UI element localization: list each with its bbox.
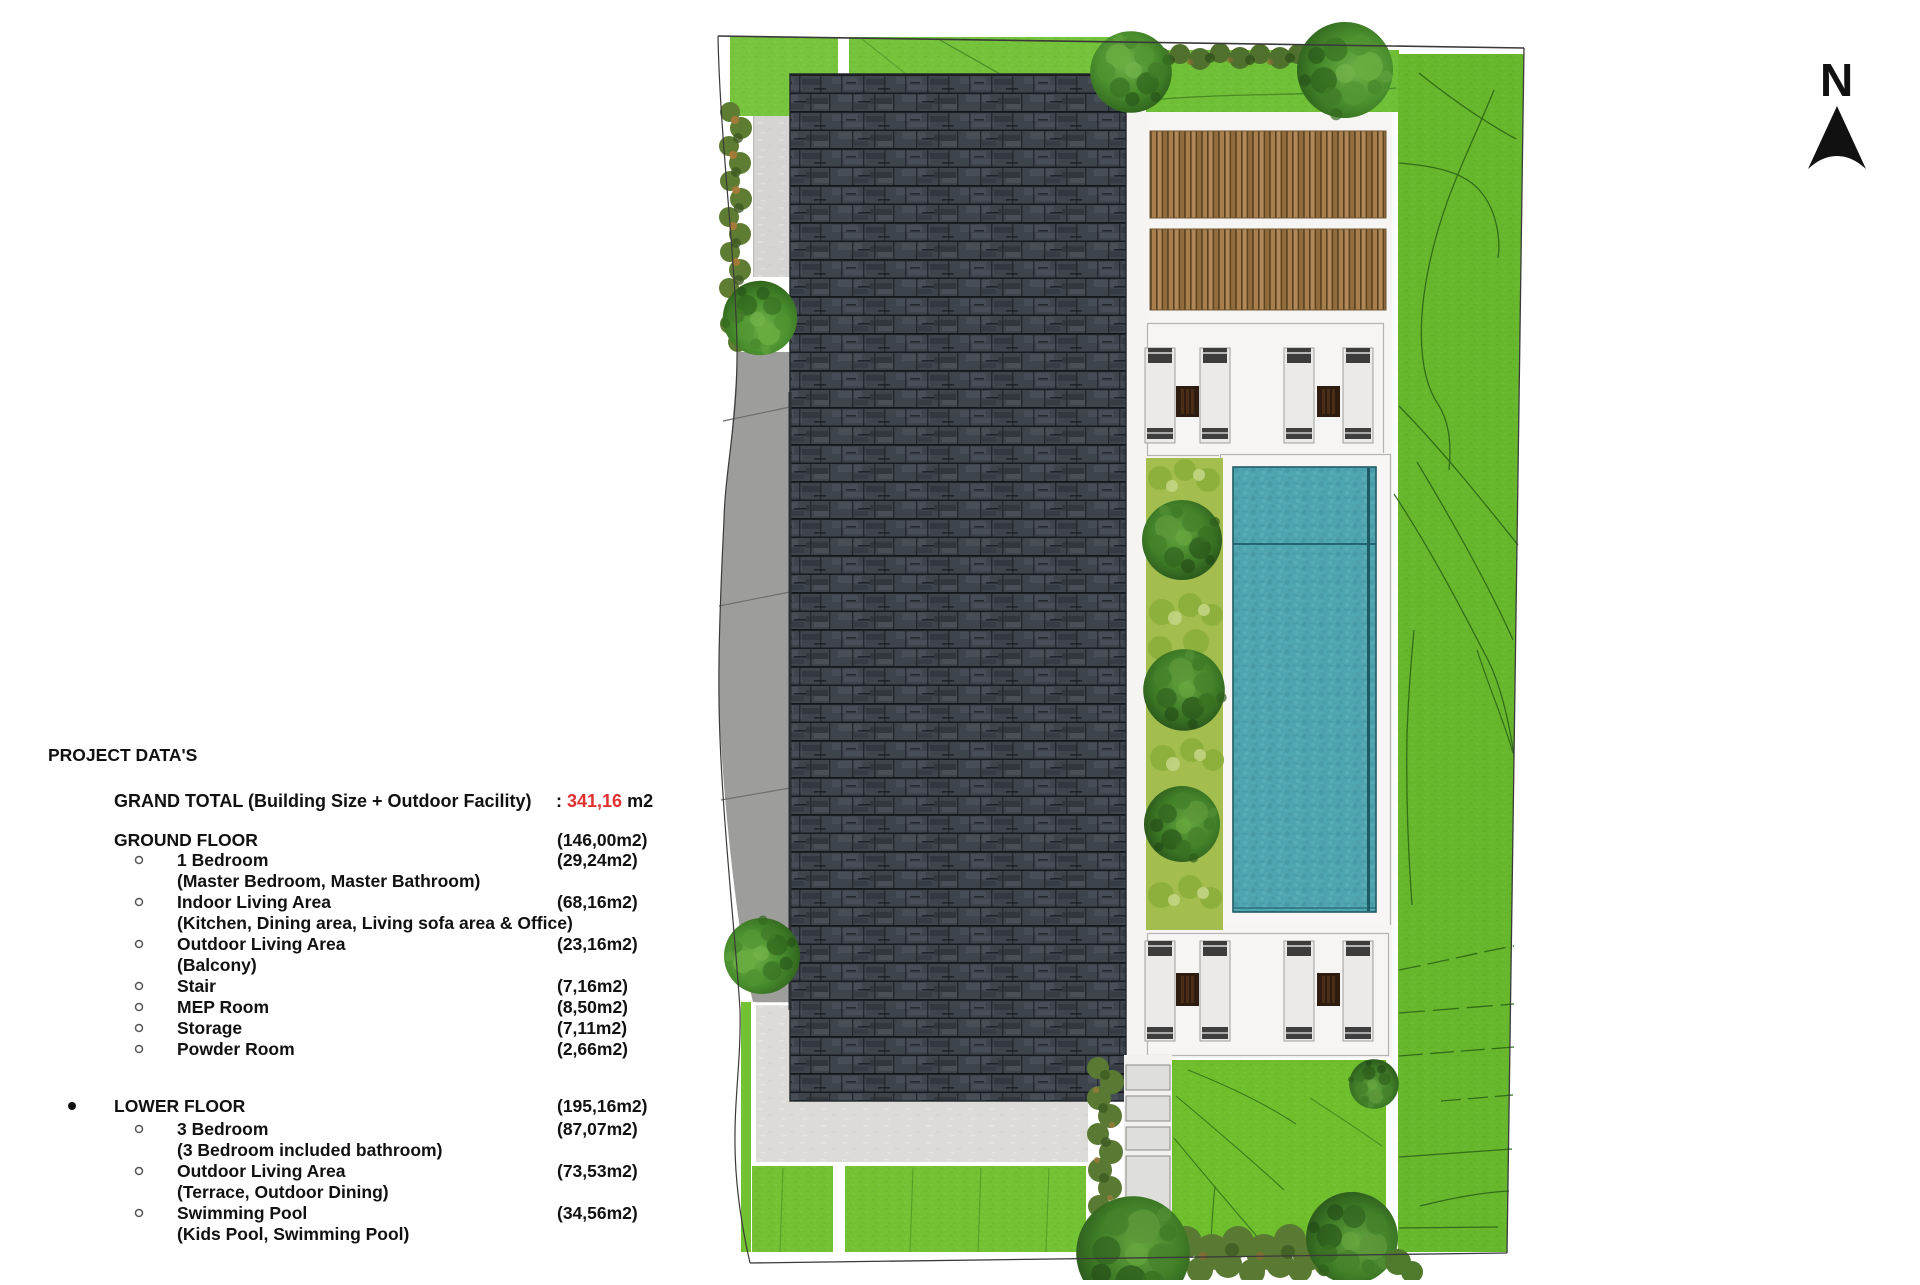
svg-text:(7,16m2): (7,16m2) (557, 976, 628, 996)
svg-text:(34,56m2): (34,56m2) (557, 1203, 638, 1223)
svg-text:(29,24m2): (29,24m2) (557, 850, 638, 870)
svg-text:(87,07m2): (87,07m2) (557, 1119, 638, 1139)
svg-text:Powder Room: Powder Room (177, 1039, 295, 1059)
svg-text:(Balcony): (Balcony) (177, 955, 257, 975)
svg-text:(68,16m2): (68,16m2) (557, 892, 638, 912)
svg-text:(2,66m2): (2,66m2) (557, 1039, 628, 1059)
svg-text:3 Bedroom: 3 Bedroom (177, 1119, 268, 1139)
svg-text:LOWER FLOOR: LOWER FLOOR (114, 1096, 246, 1116)
svg-text:MEP Room: MEP Room (177, 997, 269, 1017)
svg-text:: 341,16 m2: : 341,16 m2 (556, 791, 653, 811)
svg-text:Outdoor Living Area: Outdoor Living Area (177, 1161, 346, 1181)
svg-text:1 Bedroom: 1 Bedroom (177, 850, 268, 870)
svg-text:(Kids Pool, Swimming Pool): (Kids Pool, Swimming Pool) (177, 1224, 409, 1244)
svg-text:Stair: Stair (177, 976, 216, 996)
svg-text:GROUND FLOOR: GROUND FLOOR (114, 830, 258, 850)
svg-text:Indoor Living Area: Indoor Living Area (177, 892, 331, 912)
svg-text:N: N (1820, 54, 1853, 106)
svg-text:(8,50m2): (8,50m2) (557, 997, 628, 1017)
svg-text:(Master Bedroom, Master Bathro: (Master Bedroom, Master Bathroom) (177, 871, 480, 891)
svg-text:PROJECT DATA'S: PROJECT DATA'S (48, 745, 197, 765)
svg-text:Outdoor Living Area: Outdoor Living Area (177, 934, 346, 954)
svg-text:Storage: Storage (177, 1018, 242, 1038)
svg-text:(146,00m2): (146,00m2) (557, 830, 647, 850)
svg-text:(Kitchen, Dining area, Living: (Kitchen, Dining area, Living sofa area … (177, 913, 573, 933)
svg-text:(Terrace, Outdoor Dining): (Terrace, Outdoor Dining) (177, 1182, 389, 1202)
svg-text:(23,16m2): (23,16m2) (557, 934, 638, 954)
svg-text:(3 Bedroom included bathroom): (3 Bedroom included bathroom) (177, 1140, 442, 1160)
svg-text:GRAND TOTAL (Building Size + O: GRAND TOTAL (Building Size + Outdoor Fac… (114, 791, 532, 811)
svg-text:(73,53m2): (73,53m2) (557, 1161, 638, 1181)
svg-text:(195,16m2): (195,16m2) (557, 1096, 647, 1116)
svg-text:Swimming Pool: Swimming Pool (177, 1203, 307, 1223)
svg-text:(7,11m2): (7,11m2) (557, 1018, 627, 1038)
